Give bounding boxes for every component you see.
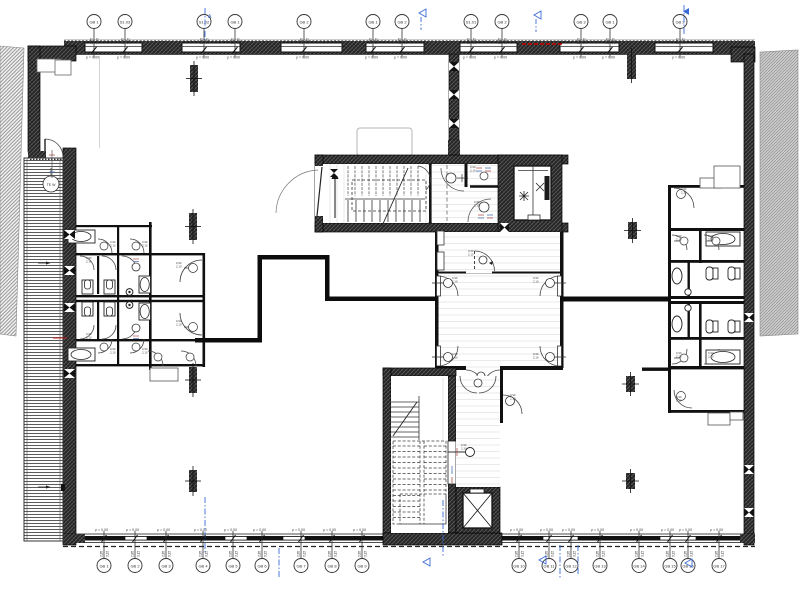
svg-text:2,85: 2,85 [369, 38, 373, 44]
svg-text:p = 0,00: p = 0,00 [126, 528, 139, 532]
svg-text:2,85: 2,85 [199, 551, 203, 557]
svg-text:GB 2: GB 2 [497, 20, 507, 25]
svg-text:2,10: 2,10 [533, 355, 539, 359]
svg-text:2,85: 2,85 [577, 38, 581, 44]
svg-text:2,85: 2,85 [300, 38, 304, 44]
svg-text:2,85: 2,85 [328, 551, 332, 557]
svg-text:3,15: 3,15 [682, 38, 686, 44]
svg-text:2,10: 2,10 [510, 396, 516, 400]
svg-text:2,85: 2,85 [131, 551, 135, 557]
svg-text:2,85: 2,85 [398, 38, 402, 44]
svg-text:3,15: 3,15 [602, 551, 606, 557]
svg-text:GB 1: GB 1 [605, 20, 615, 25]
svg-text:GB 4: GB 4 [198, 564, 208, 569]
svg-text:2,10: 2,10 [681, 190, 687, 194]
svg-text:GB 9: GB 9 [357, 564, 367, 569]
svg-text:GB 5: GB 5 [228, 564, 238, 569]
svg-text:3,15: 3,15 [237, 38, 241, 44]
svg-text:p = 0,00: p = 0,00 [602, 56, 615, 60]
svg-text:GB 17: GB 17 [713, 564, 725, 569]
svg-text:p = 0,00: p = 0,00 [394, 56, 407, 60]
svg-text:S1.02: S1.02 [199, 20, 210, 25]
svg-text:2,10: 2,10 [708, 354, 714, 358]
svg-text:3,15: 3,15 [504, 38, 508, 44]
svg-text:3,15: 3,15 [375, 38, 379, 44]
svg-text:GB 3: GB 3 [576, 20, 586, 25]
svg-text:2,10: 2,10 [676, 354, 682, 358]
svg-text:GB 1: GB 1 [99, 564, 109, 569]
svg-text:2,10: 2,10 [452, 279, 458, 283]
svg-text:p = 0,00: p = 0,00 [679, 528, 692, 532]
svg-text:3,15: 3,15 [364, 551, 368, 557]
svg-text:3,15: 3,15 [264, 551, 268, 557]
svg-text:3,15: 3,15 [721, 551, 725, 557]
svg-text:3,15: 3,15 [334, 551, 338, 557]
svg-text:p = 0,00: p = 0,00 [292, 528, 305, 532]
svg-text:3,15: 3,15 [106, 551, 110, 557]
svg-text:2,85: 2,85 [100, 551, 104, 557]
svg-text:2,85: 2,85 [90, 38, 94, 44]
svg-text:3,15: 3,15 [521, 551, 525, 557]
svg-text:GB 16: GB 16 [682, 564, 694, 569]
svg-text:2,85: 2,85 [231, 38, 235, 44]
svg-text:3,15: 3,15 [235, 551, 239, 557]
svg-text:2,10: 2,10 [176, 322, 182, 326]
svg-text:GB 12: GB 12 [565, 564, 577, 569]
svg-text:3,15: 3,15 [573, 551, 577, 557]
svg-text:p = 0,00: p = 0,00 [95, 528, 108, 532]
svg-text:p = 0,00: p = 0,00 [157, 528, 170, 532]
svg-text:3,15: 3,15 [206, 38, 210, 44]
svg-text:p = 0,00: p = 0,00 [353, 528, 366, 532]
svg-text:2,10: 2,10 [176, 264, 182, 268]
svg-text:GB 2: GB 2 [299, 20, 309, 25]
svg-text:GB 2: GB 2 [397, 20, 407, 25]
svg-text:2,10: 2,10 [86, 259, 92, 263]
svg-text:2,10: 2,10 [110, 243, 116, 247]
svg-text:p = 0,00: p = 0,00 [630, 528, 643, 532]
svg-text:p = 0,00: p = 0,00 [591, 528, 604, 532]
svg-text:p = 0,00: p = 0,00 [227, 56, 240, 60]
svg-text:TE W: TE W [47, 183, 56, 187]
svg-text:2,10: 2,10 [676, 398, 682, 402]
svg-text:2,10: 2,10 [708, 237, 714, 241]
svg-text:3,15: 3,15 [168, 551, 172, 557]
svg-text:GB 1: GB 1 [368, 20, 378, 25]
svg-text:GB 14: GB 14 [633, 564, 645, 569]
svg-text:GB 7: GB 7 [296, 564, 306, 569]
svg-text:p = 0,00: p = 0,00 [672, 56, 685, 60]
svg-text:2,10: 2,10 [468, 252, 474, 256]
svg-text:2,85: 2,85 [498, 38, 502, 44]
svg-text:p = 0,00: p = 0,00 [710, 528, 723, 532]
svg-text:S1.01: S1.01 [466, 20, 477, 25]
svg-text:2,85: 2,85 [666, 551, 670, 557]
svg-text:GB 10: GB 10 [513, 564, 525, 569]
svg-text:2,10: 2,10 [142, 243, 148, 247]
svg-text:p = 0,00: p = 0,00 [562, 528, 575, 532]
svg-text:p = 0,00: p = 0,00 [463, 56, 476, 60]
svg-text:GB 6: GB 6 [257, 564, 267, 569]
svg-text:2,85: 2,85 [258, 551, 262, 557]
svg-text:p = 0,00: p = 0,00 [196, 56, 209, 60]
svg-text:2,10: 2,10 [86, 335, 92, 339]
svg-text:2,10: 2,10 [470, 168, 476, 172]
svg-text:3,15: 3,15 [583, 38, 587, 44]
svg-text:p = 0,00: p = 0,00 [296, 56, 309, 60]
svg-text:2,85: 2,85 [229, 551, 233, 557]
svg-text:3,15: 3,15 [303, 551, 307, 557]
svg-text:2,85: 2,85 [515, 551, 519, 557]
svg-text:2,10: 2,10 [461, 446, 467, 450]
svg-text:GB 1: GB 1 [230, 20, 240, 25]
svg-text:3,15: 3,15 [551, 551, 555, 557]
svg-text:p = 0,00: p = 0,00 [510, 528, 523, 532]
svg-text:p = 0,00: p = 0,00 [573, 56, 586, 60]
svg-text:2,85: 2,85 [606, 38, 610, 44]
svg-text:GB 13: GB 13 [594, 564, 606, 569]
svg-text:3,15: 3,15 [96, 38, 100, 44]
svg-text:3,15: 3,15 [127, 38, 131, 44]
svg-text:p = 0,00: p = 0,00 [494, 56, 507, 60]
svg-text:p = 0,00: p = 0,00 [224, 528, 237, 532]
svg-text:2,85: 2,85 [162, 551, 166, 557]
svg-text:GB 1: GB 1 [89, 20, 99, 25]
svg-text:2,85: 2,85 [297, 551, 301, 557]
svg-text:3,15: 3,15 [672, 551, 676, 557]
svg-text:2,85: 2,85 [635, 551, 639, 557]
svg-text:2,85: 2,85 [596, 551, 600, 557]
svg-text:2,85: 2,85 [684, 551, 688, 557]
svg-text:3,15: 3,15 [404, 38, 408, 44]
svg-text:2,85: 2,85 [567, 551, 571, 557]
svg-text:3,15: 3,15 [641, 551, 645, 557]
svg-text:3,15: 3,15 [690, 551, 694, 557]
svg-text:3,15: 3,15 [612, 38, 616, 44]
svg-text:S1.03: S1.03 [120, 20, 131, 25]
svg-text:3,15: 3,15 [306, 38, 310, 44]
svg-text:p = 0,00: p = 0,00 [323, 528, 336, 532]
svg-text:2,85: 2,85 [715, 551, 719, 557]
svg-text:2,85: 2,85 [121, 38, 125, 44]
svg-text:3,15: 3,15 [137, 551, 141, 557]
svg-text:p = 0,00: p = 0,00 [117, 56, 130, 60]
svg-text:p = 0,00: p = 0,00 [86, 56, 99, 60]
svg-text:2,85: 2,85 [200, 38, 204, 44]
svg-text:GB 2: GB 2 [130, 564, 140, 569]
svg-text:2,10: 2,10 [452, 355, 458, 359]
svg-text:p = 0,00: p = 0,00 [253, 528, 266, 532]
svg-text:3,15: 3,15 [473, 38, 477, 44]
svg-text:2,10: 2,10 [142, 350, 148, 354]
svg-text:2,85: 2,85 [676, 38, 680, 44]
svg-text:2,10: 2,10 [110, 350, 116, 354]
svg-text:p = 0,00: p = 0,00 [661, 528, 674, 532]
svg-text:2,10: 2,10 [533, 279, 539, 283]
svg-text:2,10: 2,10 [676, 237, 682, 241]
svg-text:2,85: 2,85 [358, 551, 362, 557]
svg-text:p = 0,00: p = 0,00 [365, 56, 378, 60]
svg-text:p = 0,00: p = 0,00 [540, 528, 553, 532]
svg-text:GB 8: GB 8 [327, 564, 337, 569]
svg-text:GB 11: GB 11 [543, 564, 555, 569]
svg-text:2,85: 2,85 [467, 38, 471, 44]
svg-text:GB 3: GB 3 [161, 564, 171, 569]
svg-text:GB 15: GB 15 [664, 564, 676, 569]
svg-text:2,10: 2,10 [474, 203, 480, 207]
